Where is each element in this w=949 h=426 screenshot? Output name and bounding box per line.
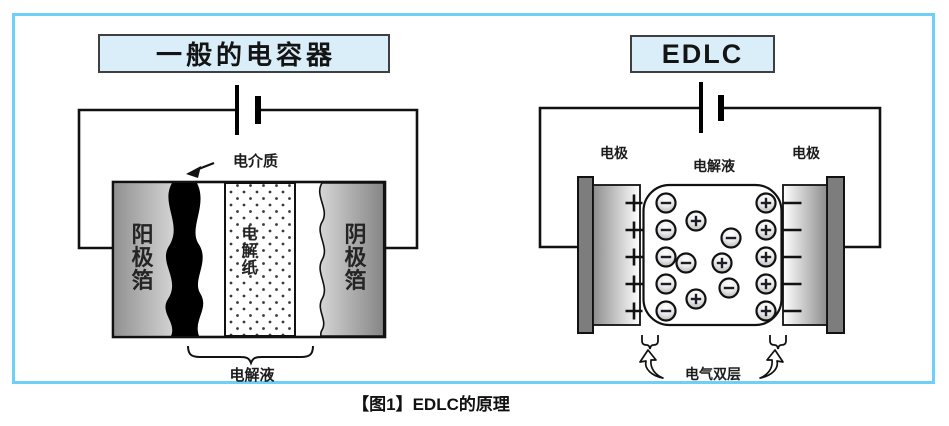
double-layer-label: 电气双层 bbox=[685, 364, 741, 384]
figure-caption: 【图1】EDLC的原理 bbox=[352, 390, 510, 415]
anion-icon bbox=[720, 279, 739, 298]
anion-icon bbox=[657, 221, 676, 240]
dielectric-wavy-band bbox=[165, 183, 203, 336]
electrode-left-label: 电极 bbox=[600, 143, 628, 163]
edlc-diagram bbox=[540, 82, 880, 378]
anion-icon bbox=[657, 275, 676, 294]
cation-icon bbox=[687, 290, 706, 309]
anode-foil-label: 阳极箔 bbox=[129, 224, 156, 293]
anion-icon bbox=[657, 194, 676, 213]
double-layer-brace-left-icon bbox=[642, 335, 658, 349]
dielectric-arrow-icon bbox=[186, 166, 201, 178]
battery-icon bbox=[237, 85, 258, 135]
cation-icon bbox=[757, 221, 776, 240]
cation-icon bbox=[757, 275, 776, 294]
left-diagram-title-box: 一般的电容器 bbox=[98, 34, 390, 73]
anion-icon bbox=[677, 254, 696, 273]
dielectric-label: 电介质 bbox=[233, 150, 278, 171]
right-electrode-block bbox=[783, 185, 827, 325]
right-terminal-bar bbox=[827, 177, 844, 333]
electrode-right-label: 电极 bbox=[792, 143, 820, 163]
cation-icon bbox=[757, 248, 776, 267]
edlc-title-box: EDLC bbox=[630, 35, 775, 73]
electrolytic-paper-label: 电解纸 bbox=[240, 227, 259, 278]
electrolyte-label-left: 电解液 bbox=[229, 364, 274, 385]
electrolyte-brace-icon bbox=[188, 346, 313, 363]
battery-icon bbox=[701, 82, 721, 133]
electrolyte-label-edlc: 电解液 bbox=[693, 156, 735, 176]
cation-icon bbox=[713, 254, 732, 273]
anion-icon bbox=[657, 248, 676, 267]
anion-icon bbox=[722, 229, 741, 248]
cation-icon bbox=[757, 194, 776, 213]
figure-canvas: 一般的电容器 EDLC 电介质 阳极箔 电解纸 阴极箔 电解液 电极 电解液 电… bbox=[0, 0, 949, 426]
left-terminal-bar bbox=[578, 177, 593, 333]
cation-icon bbox=[757, 302, 776, 321]
cathode-foil-label: 阴极箔 bbox=[342, 224, 369, 293]
edlc-title: EDLC bbox=[662, 39, 744, 70]
cation-icon bbox=[687, 212, 706, 231]
separator-paper-dotted bbox=[225, 183, 295, 336]
double-layer-arrow-right-icon bbox=[760, 350, 783, 378]
double-layer-arrow-left-icon bbox=[640, 350, 663, 378]
left-diagram-title: 一般的电容器 bbox=[152, 35, 336, 72]
anion-icon bbox=[657, 302, 676, 321]
double-layer-brace-right-icon bbox=[770, 335, 786, 349]
